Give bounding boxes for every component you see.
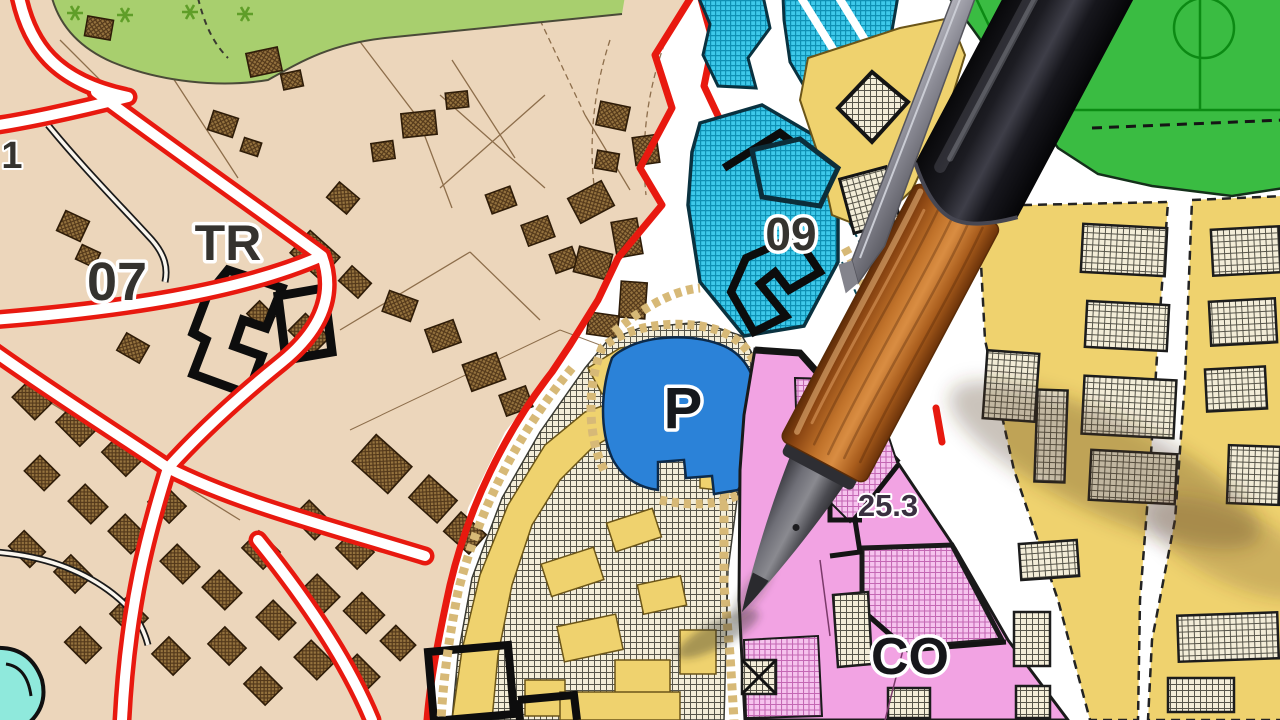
label-p: P <box>664 376 703 441</box>
label-co: CO <box>871 628 949 686</box>
zoning-map: 07 TR 1 09 P 25.3 CO <box>0 0 1280 720</box>
label-1: 1 <box>1 135 22 177</box>
label-tr: TR <box>195 215 262 271</box>
label-25-3: 25.3 <box>858 488 918 523</box>
map-canvas: 07 TR 1 09 P 25.3 CO <box>0 0 1280 720</box>
label-09: 09 <box>765 208 816 260</box>
label-07: 07 <box>87 252 147 312</box>
